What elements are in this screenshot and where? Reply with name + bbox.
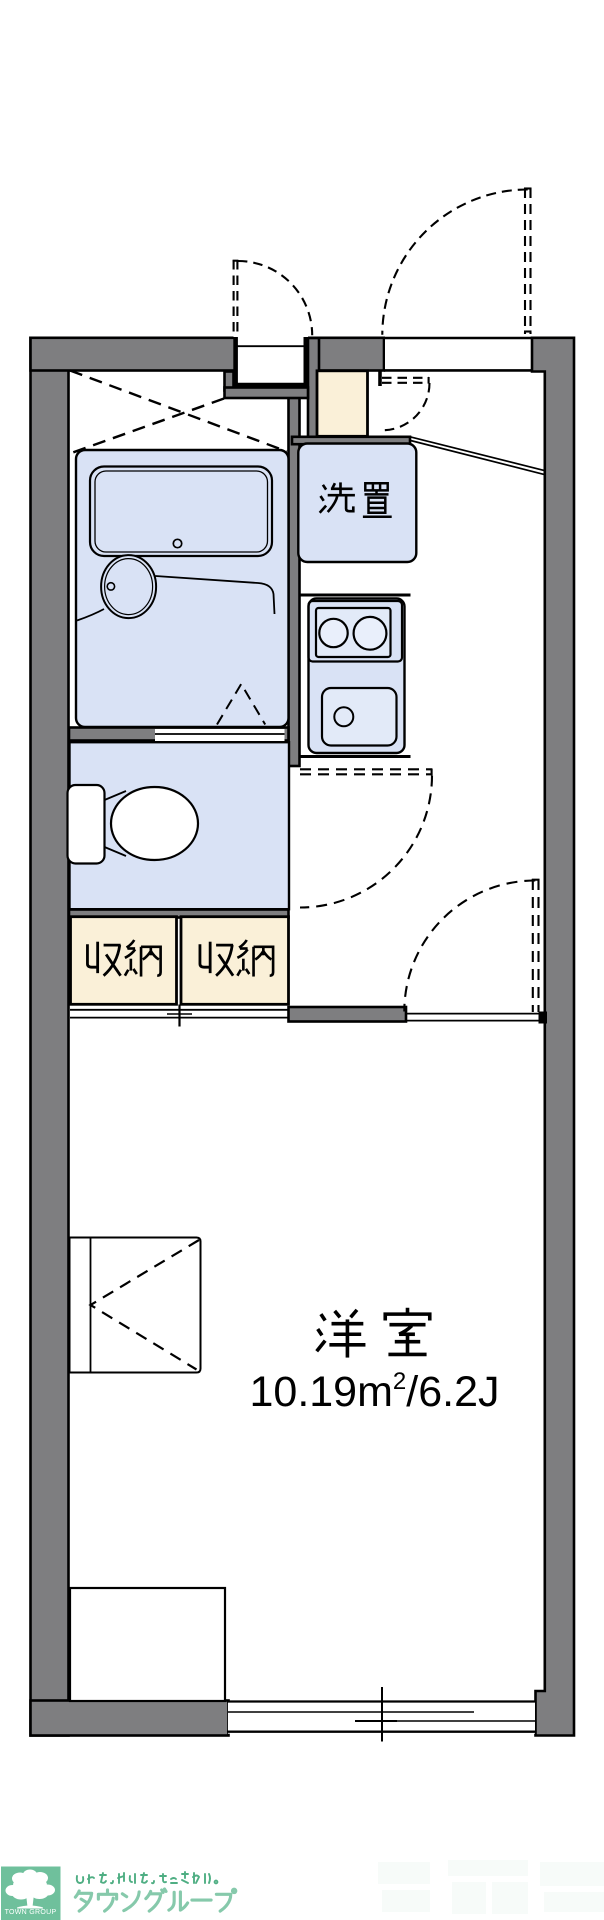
svg-text:10.19m2/6.2J: 10.19m2/6.2J [249,1368,499,1416]
svg-text:TOWN GROUP: TOWN GROUP [5,1909,57,1916]
